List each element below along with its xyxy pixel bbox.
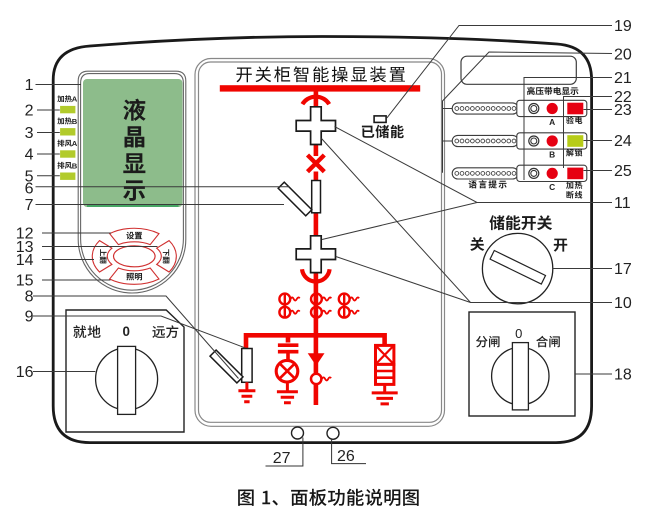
svg-text:B: B bbox=[72, 117, 78, 126]
svg-text:3: 3 bbox=[25, 125, 34, 142]
svg-text:20: 20 bbox=[614, 47, 632, 64]
svg-text:C: C bbox=[549, 182, 555, 192]
svg-text:15: 15 bbox=[16, 273, 34, 290]
svg-text:16: 16 bbox=[16, 364, 34, 381]
svg-text:A: A bbox=[549, 117, 555, 127]
svg-text:27: 27 bbox=[273, 450, 291, 467]
svg-text:18: 18 bbox=[614, 367, 632, 384]
svg-text:10: 10 bbox=[614, 295, 632, 312]
svg-text:23: 23 bbox=[614, 102, 632, 119]
svg-text:4: 4 bbox=[25, 147, 34, 164]
svg-text:B: B bbox=[549, 149, 555, 159]
svg-text:17: 17 bbox=[614, 261, 632, 278]
svg-text:24: 24 bbox=[614, 133, 632, 150]
svg-text:1: 1 bbox=[25, 77, 34, 94]
svg-text:26: 26 bbox=[337, 448, 355, 465]
svg-text:A: A bbox=[72, 139, 78, 148]
svg-text:14: 14 bbox=[16, 252, 34, 269]
svg-text:2: 2 bbox=[25, 103, 34, 120]
svg-text:19: 19 bbox=[614, 18, 632, 35]
svg-text:9: 9 bbox=[25, 309, 34, 326]
svg-text:B: B bbox=[72, 161, 78, 170]
svg-text:0: 0 bbox=[515, 326, 522, 341]
svg-text:0: 0 bbox=[122, 324, 129, 339]
svg-text:21: 21 bbox=[614, 70, 632, 87]
svg-text:25: 25 bbox=[614, 163, 632, 180]
svg-text:A: A bbox=[72, 95, 78, 104]
svg-text:7: 7 bbox=[25, 197, 34, 214]
svg-text:6: 6 bbox=[25, 181, 34, 198]
svg-text:8: 8 bbox=[25, 289, 34, 306]
svg-text:11: 11 bbox=[614, 195, 631, 212]
